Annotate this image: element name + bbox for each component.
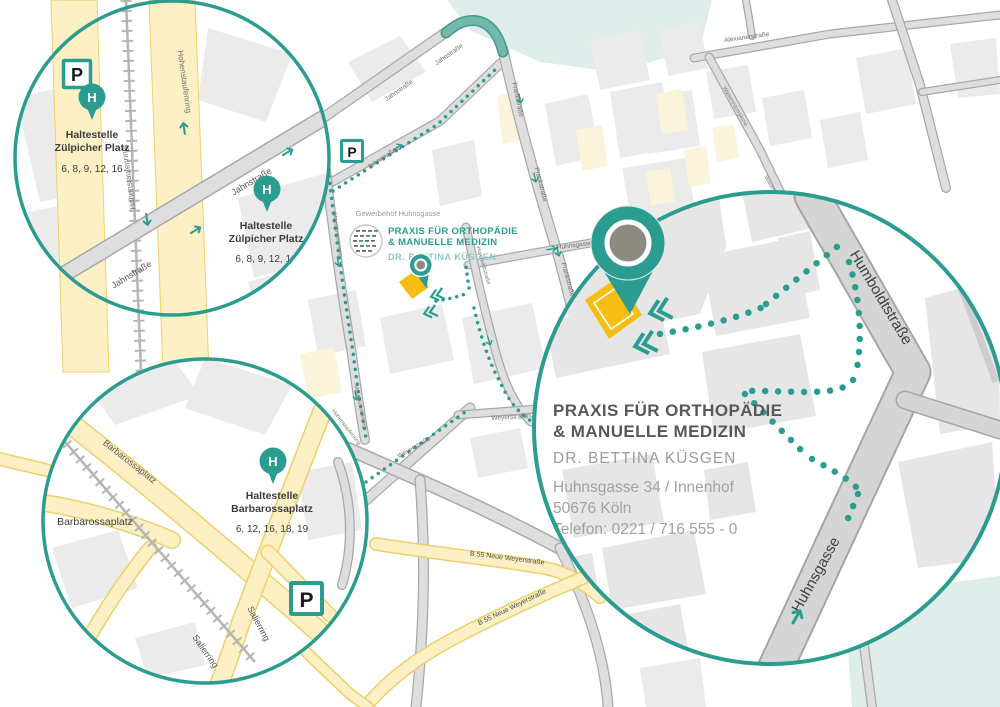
- parking-marker: P: [342, 141, 363, 162]
- stop-title: Zülpicher Platz: [229, 233, 304, 245]
- street-label: Jahnstraße: [434, 42, 465, 67]
- stop-title: Haltestelle: [240, 220, 293, 232]
- street-label: B 55 Neue Weyerstraße: [477, 588, 548, 627]
- stop-letter: H: [268, 454, 277, 469]
- map-page: Jahnstraße Jahnstraße Jahnstraße Frankst…: [0, 0, 1000, 707]
- practice-doctor: DR. BETTINA KÜSGEN: [553, 449, 736, 467]
- stop-title: Haltestelle: [66, 129, 119, 141]
- stop-label: Haltestelle Zülpicher Platz 6, 8, 9, 12,…: [55, 129, 130, 175]
- practice-name-line1: PRAXIS FÜR ORTHOPÄDIE: [553, 401, 782, 420]
- practice-phone: Telefon: 0221 / 716 555 - 0: [553, 521, 738, 538]
- practice-doctor: DR. BETTINA KÜSGEN: [388, 252, 496, 262]
- parking-marker: P: [291, 583, 322, 614]
- practice-address-city: 50676 Köln: [553, 500, 631, 517]
- place-label: Barbarossaplatz: [57, 516, 133, 528]
- stop-title: Barbarossaplatz: [231, 503, 313, 515]
- map-canvas: Jahnstraße Jahnstraße Jahnstraße Frankst…: [0, 0, 1000, 707]
- inset-barbarossaplatz: Barbarossaplatz Barbarossaplatz Salierri…: [38, 355, 367, 688]
- parking-letter: P: [347, 144, 356, 160]
- parking-letter: P: [71, 65, 83, 85]
- practice-name-line2: & MANUELLE MEDIZIN: [388, 237, 497, 248]
- stop-title: Zülpicher Platz: [55, 142, 130, 154]
- parking-letter: P: [299, 589, 313, 612]
- street-label: Weyerstraße: [491, 413, 529, 422]
- stop-lines: 6, 12, 16, 18, 19: [236, 524, 309, 535]
- stop-letter: H: [262, 182, 271, 197]
- practice-logo: [350, 225, 382, 257]
- practice-address-street: Huhnsgasse 34 / Innenhof: [553, 479, 735, 496]
- stop-letter: H: [87, 90, 96, 105]
- practice-name-line1: PRAXIS FÜR ORTHOPÄDIE: [388, 226, 518, 237]
- gewerbehof-label: Gewerbehof Huhnsgasse: [356, 209, 441, 218]
- practice-name-line2: & MANUELLE MEDIZIN: [553, 422, 746, 441]
- stop-title: Haltestelle: [246, 490, 299, 502]
- stop-lines: 6, 8, 9, 12, 16: [61, 164, 123, 175]
- parking-marker: P: [64, 61, 91, 88]
